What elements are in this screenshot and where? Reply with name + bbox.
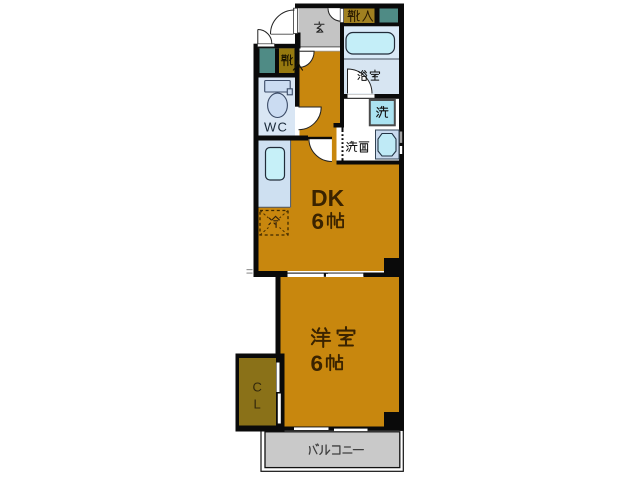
svg-text:WC: WC: [264, 119, 288, 134]
svg-text:L: L: [254, 397, 261, 412]
svg-text:6: 6: [312, 209, 325, 234]
svg-text:C: C: [253, 380, 262, 395]
svg-text:6: 6: [311, 351, 324, 376]
svg-text:DK: DK: [311, 185, 345, 211]
